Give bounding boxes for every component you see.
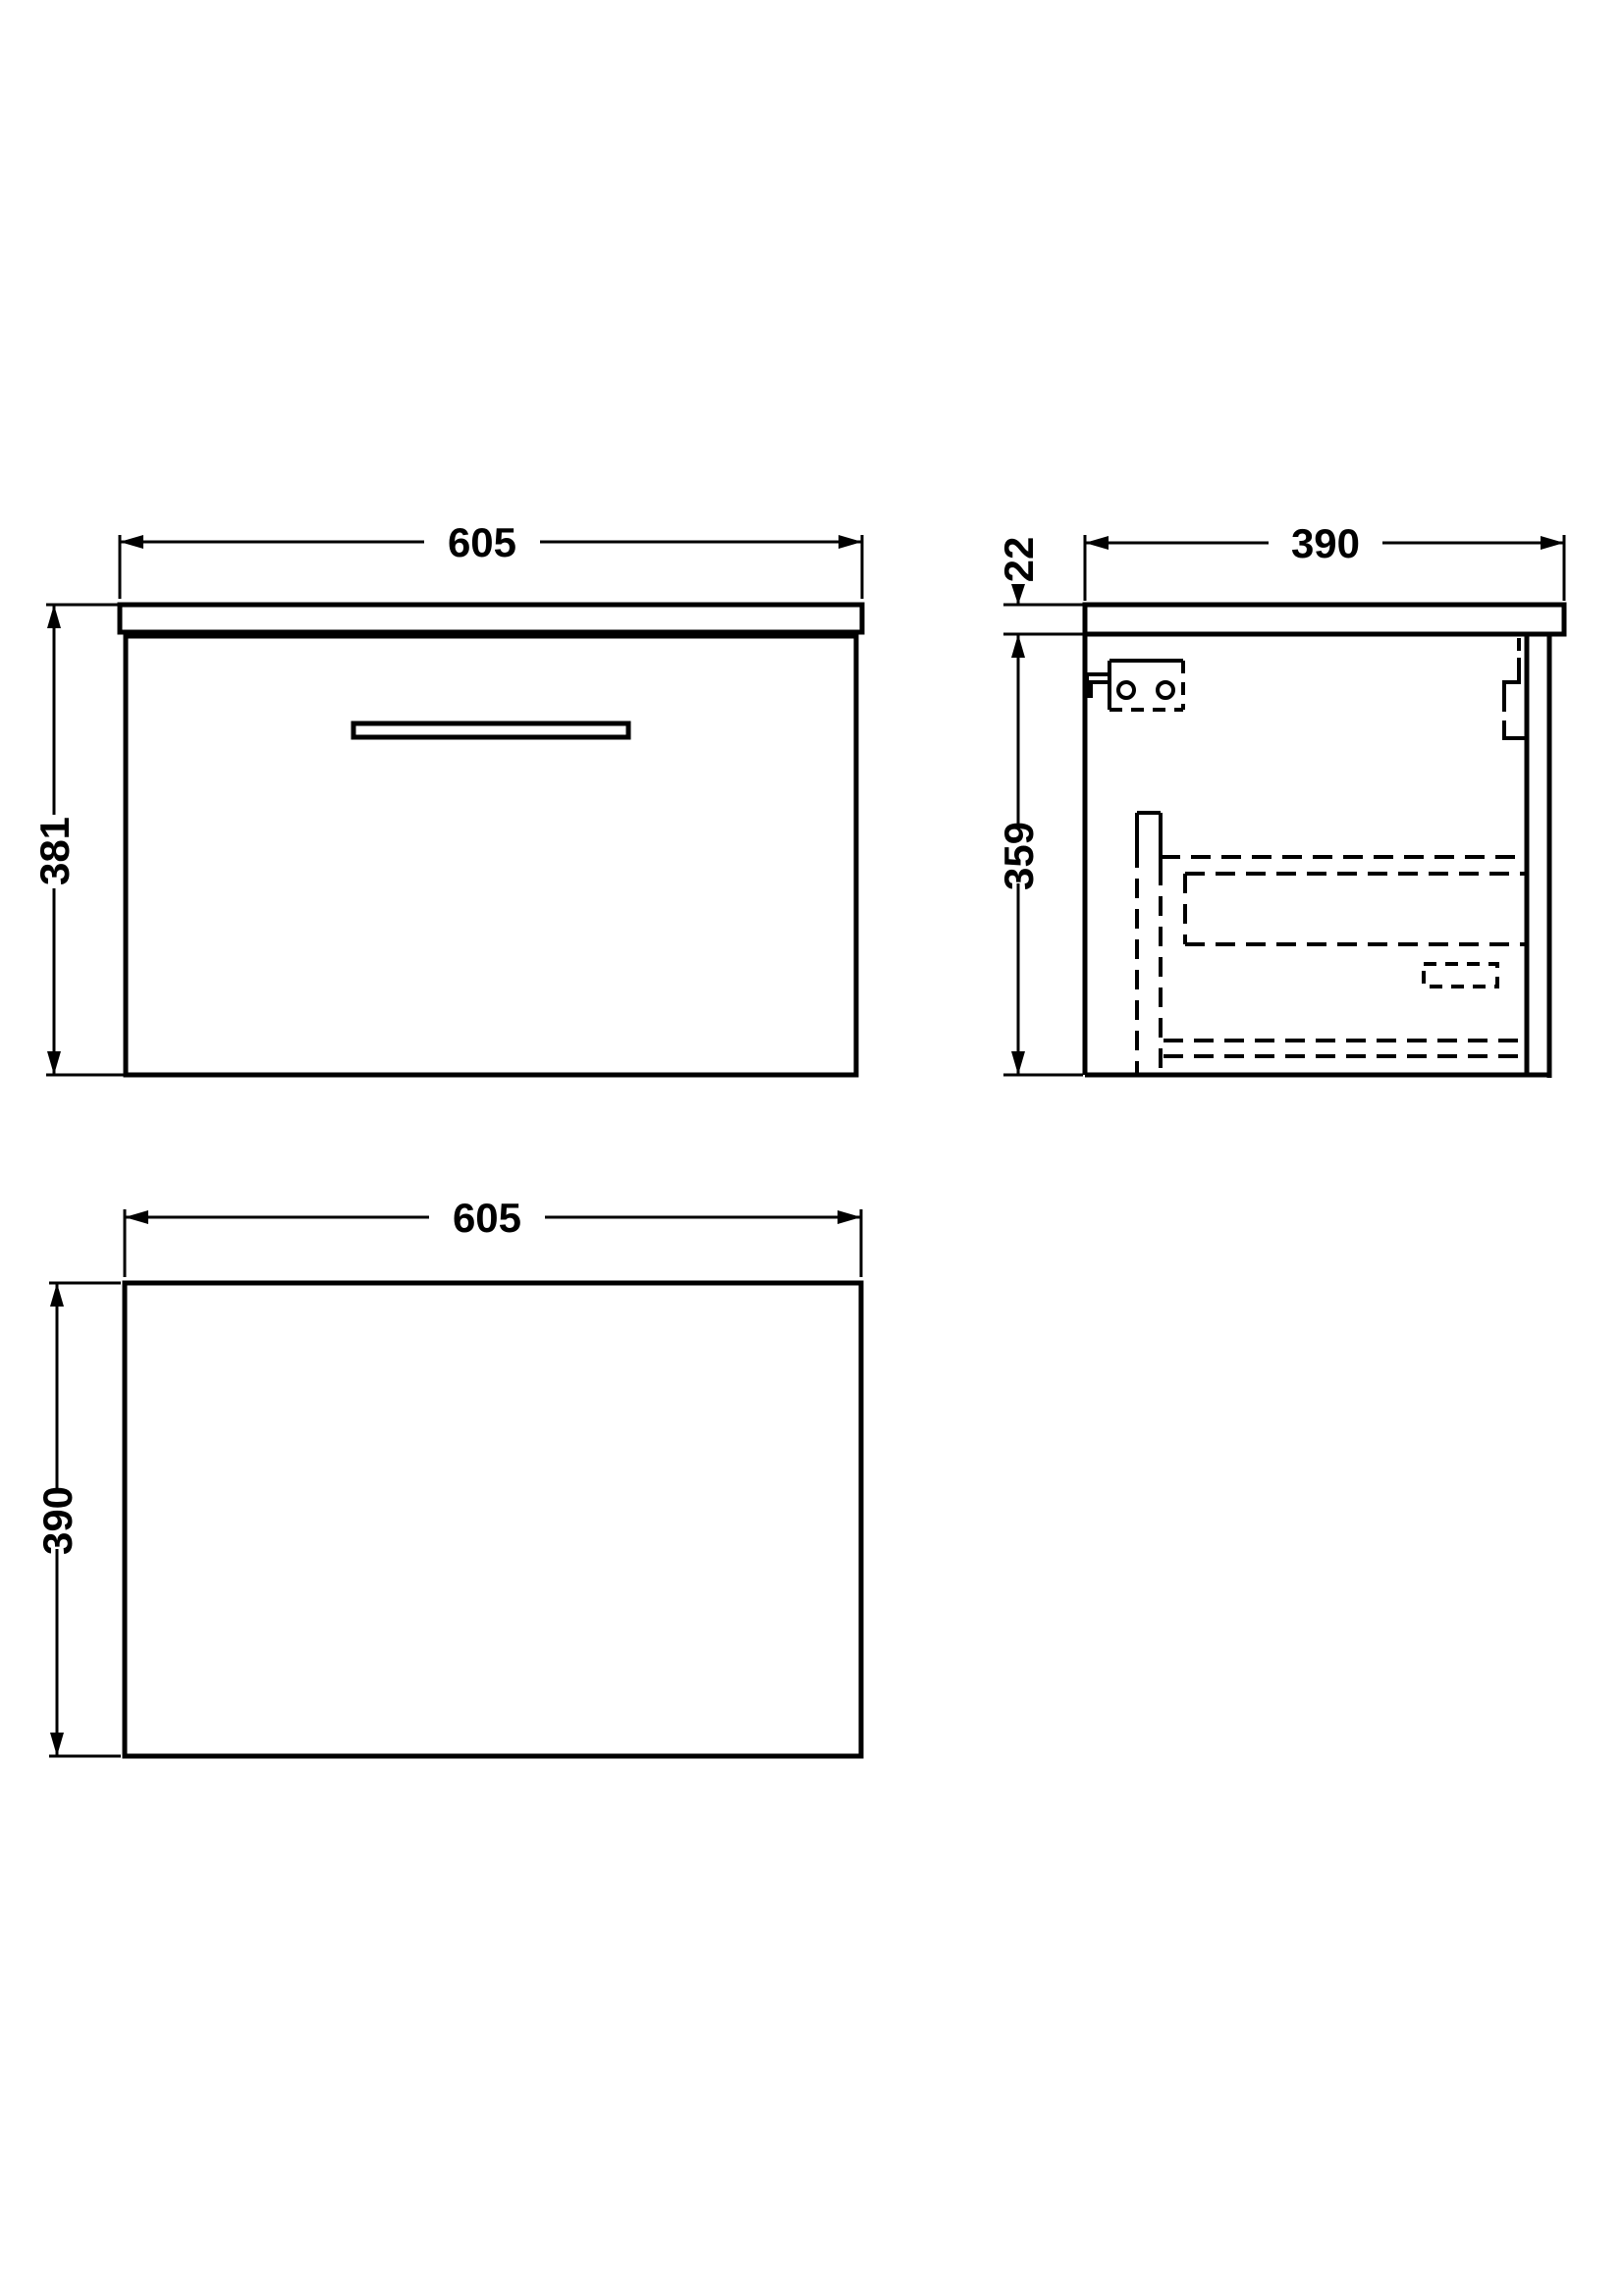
front-height-label: 381 [31,817,78,885]
bracket-screw-hole [1158,682,1173,698]
side-drawer-hidden-outline [1161,857,1527,1056]
side-worktop-label: 22 [996,537,1042,583]
side-wall-bracket [1084,661,1183,710]
side-height-label: 359 [996,822,1042,890]
side-worktop-dimension: 22 [996,537,1083,634]
side-drawer-recess [1424,964,1497,987]
side-drawer-runner [1137,813,1161,1073]
front-width-dimension: 605 [120,519,862,599]
bracket-screw-hole [1118,682,1134,698]
front-drawer-handle [353,723,628,737]
front-cabinet-body [126,636,856,1075]
plan-width-label: 605 [453,1195,521,1241]
bracket-hook [1087,674,1109,682]
plan-width-dimension: 605 [125,1195,861,1277]
plan-view: 605 390 [34,1195,861,1756]
side-height-dimension: 359 [996,634,1083,1075]
plan-worktop-outline [125,1283,861,1756]
side-depth-dimension: 390 [1085,520,1564,601]
front-height-dimension: 381 [31,605,124,1075]
front-worktop [120,605,862,632]
front-width-label: 605 [448,519,516,565]
technical-drawing-page: 605 381 390 [0,0,1623,2296]
side-worktop [1085,605,1564,634]
plan-depth-label: 390 [34,1486,81,1555]
side-view: 390 22 359 [996,520,1564,1078]
front-view: 605 381 [31,519,862,1075]
plan-depth-dimension: 390 [34,1283,121,1756]
side-depth-label: 390 [1291,520,1360,566]
